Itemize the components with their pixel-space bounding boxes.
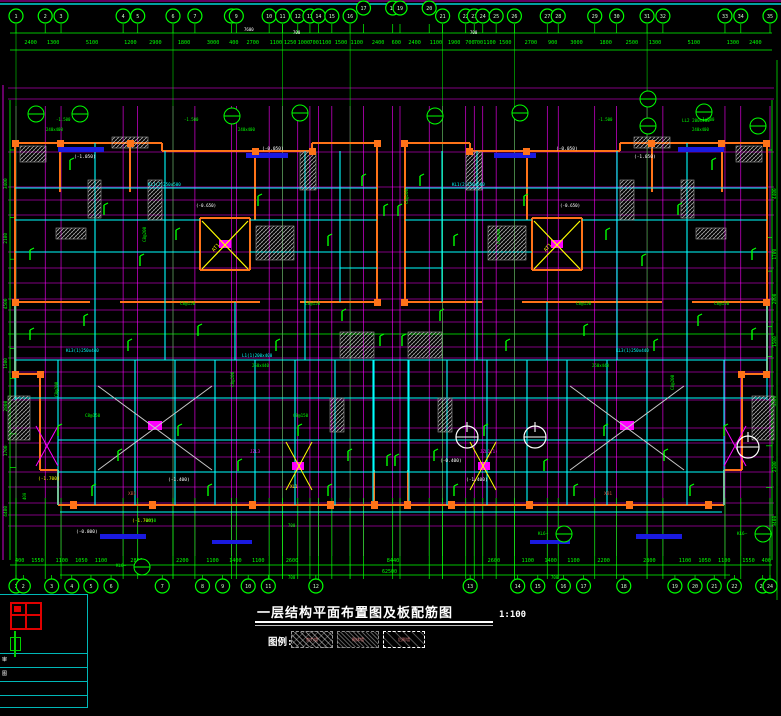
dimension-text: 2500 [626,40,639,46]
axis-number: 12 [313,584,319,590]
axis-number: 31 [644,14,650,20]
axis-number: 16 [347,14,353,20]
cad-application-window: 1234567891011121314151617181920212223242… [0,0,781,716]
dimension-text: 1100 [430,40,443,46]
dimension-text: 1100 [55,558,68,564]
column [327,501,334,509]
rebar-tick [642,254,646,256]
axis-number: 20 [426,6,432,12]
column [763,140,770,147]
lintel [58,147,104,152]
annotation-text: (-0.050) [262,146,284,152]
axis-number: 5 [89,584,92,590]
axis-number: 3 [50,584,53,590]
dimension-text: 1100 [567,558,580,564]
dimension-text: 2800 [772,293,778,304]
dimension-text: 1300 [649,40,662,46]
hatched-wall [256,226,294,260]
dimension-text: 1100 [319,40,332,46]
rebar-tick [104,203,108,205]
dimension-text: 1100 [351,40,364,46]
dimension-text: 2200 [597,558,610,564]
annotation-text: C8@200 [496,228,501,244]
column [127,140,134,147]
hatched-wall [408,332,442,358]
column [401,299,408,306]
hatched-wall [620,180,634,220]
dimension-text: 5100 [86,40,99,46]
axis-number: 14 [515,584,521,590]
annotation-text: 7600 [244,27,254,32]
dimension-text: 1700 [3,445,9,456]
axis-number: 16 [560,584,566,590]
annotation-text: -1.500 [184,117,199,122]
column [763,299,770,306]
dimension-text: 1900 [448,40,461,46]
annotation-text: 240x400 [692,127,709,132]
rebar-tick [118,449,122,451]
dimension-text: 1500 [3,358,9,369]
axis-number: 17 [580,584,586,590]
column [648,140,655,147]
dimension-text: 1200 [124,40,137,46]
dimension-text: 1500 [335,40,348,46]
annotation-text: KL6— [737,531,748,536]
lintel [100,534,146,539]
dimension-text: 1300 [47,40,60,46]
hatched-wall [752,396,774,440]
annotation-text: JZL3 [250,449,261,454]
axis-number: 2 [44,14,47,20]
column [12,299,19,306]
axis-number: 26 [511,14,517,20]
titleblock-symbol-icon [10,631,22,657]
hatched-wall [56,228,86,239]
rebar-tick [698,314,702,316]
rebar-tick [328,234,332,236]
axis-number: 4 [70,584,73,590]
axis-number: 7 [193,14,196,20]
annotation-text: C8@200 [54,381,59,397]
column [523,148,530,155]
dimension-text: 4400 [3,506,9,517]
hatched-wall [488,226,526,260]
rebar-tick [84,314,88,316]
annotation-text: 700 [288,523,296,528]
rebar-tick [298,424,302,426]
annotation-text: XL1 [290,484,298,489]
dimension-text: 1100 [483,40,496,46]
annotation-text: C8@200 [670,374,675,390]
hatched-wall [8,396,30,440]
legend-swatch-3: 后砌墙 [383,631,425,648]
titleblock-stamp-icon [10,602,42,630]
annotation-text: 700 [551,575,559,580]
axis-number: 24 [480,14,486,20]
dimension-text: 2800 [643,558,656,564]
rebar-tick [654,339,658,341]
legend-swatch-2: 砌体墙 [337,631,379,648]
rebar-tick [30,328,34,330]
rebar-tick [664,449,668,451]
lintel [212,540,252,544]
rebar-tick [140,254,144,256]
rebar-tick [258,194,262,196]
dimension-text: 1000 [298,40,311,46]
annotation-text: 250x440 [252,363,269,368]
annotation-text: C8@150 [305,301,321,306]
dimension-text: 2400 [408,40,421,46]
annotation-text: C8@200 [230,371,235,387]
annotation-text: XB1 [604,491,612,497]
axis-number: 9 [235,14,238,20]
dimension-text: 1700 [772,249,778,260]
axis-number: 8 [201,584,204,590]
dimension-text: 1100 [252,558,265,564]
rebar-tick [362,174,366,176]
annotation-text: (-0.800) [76,529,98,535]
annotation-text: 2550 [146,518,157,523]
column [371,501,378,509]
hatched-wall [696,228,726,239]
axis-number: 17 [360,6,366,12]
rebar-tick [434,449,438,451]
column [249,501,256,509]
axis-number: 13 [467,584,473,590]
column [705,501,712,509]
dimension-text: 600 [392,40,401,46]
annotation-text: (-1.700) [38,476,60,482]
column [374,299,381,306]
hatched-wall [20,146,46,162]
axis-number: 34 [738,14,744,20]
annotation-text: (-1.050) [74,154,96,160]
title-block: 审 图 [0,594,88,708]
column [466,148,473,155]
axis-number: 27 [544,14,550,20]
axis-number: 24 [767,584,773,590]
axis-number: 6 [110,584,113,590]
dimension-text: 700 [310,40,319,46]
rebar-tick [712,158,716,160]
dimension-text: 2900 [149,40,162,46]
axis-number: 28 [555,14,561,20]
dimension-text: 1100 [206,558,219,564]
axis-number: 3 [60,14,63,20]
dimension-text: 1400 [544,558,557,564]
annotation-text: 700 [470,30,478,35]
annotation-text: C8@150 [85,413,101,418]
annotation-text: -1.500 [700,117,715,122]
annotation-text: (-1.050) [634,154,656,160]
rebar-tick [724,424,728,426]
rebar-tick [752,328,756,330]
annotation-text: C8@200 [142,226,147,242]
axis-number: 35 [767,14,773,20]
drawing-scale: 1:100 [499,610,526,620]
dimension-text: 3000 [570,40,583,46]
rebar-tick [328,484,332,486]
axis-number: 22 [731,584,737,590]
annotation-text: KL1(2)250x500 [148,182,181,187]
dimension-text: 2400 [372,40,385,46]
dimension-text: 400 [229,40,238,46]
dimension-text: 1300 [727,40,740,46]
legend: 剪力墙 砌体墙 后砌墙 [291,631,425,648]
dimension-text: 4400 [772,188,778,199]
column [626,501,633,509]
rebar-tick [30,248,34,250]
axis-number: 9 [221,584,224,590]
dimension-text: 2200 [176,558,189,564]
hatched-wall [438,398,452,432]
column [718,140,725,147]
column [37,371,44,378]
axis-number: 6 [171,14,174,20]
rebar-tick [128,339,132,341]
dimension-text: 400 [15,558,24,564]
dimension-text: 4500 [3,298,9,309]
axis-number: 4 [122,14,125,20]
rebar-tick [690,484,694,486]
legend-swatch-1: 剪力墙 [291,631,333,648]
rebar-tick [420,174,424,176]
title-underline-2 [255,625,493,626]
rebar-tick [506,339,510,341]
rebar-tick [387,454,391,456]
dimension-text: 3400 [3,178,9,189]
dimension-text: 1550 [742,558,755,564]
column [57,140,64,147]
dimension-text: 1050 [698,558,711,564]
column [252,148,259,155]
dimension-text: 700 [474,40,483,46]
column [401,140,408,147]
dimension-text: 2400 [24,40,37,46]
hatched-wall [340,332,374,358]
dimension-text: 3000 [207,40,220,46]
axis-number: 20 [692,584,698,590]
axis-number: 12 [295,14,301,20]
axis-number: 21 [711,584,717,590]
lintel [678,147,724,152]
annotation-text: KL3(1)250x440 [66,348,99,353]
annotation-text: 240x400 [238,127,255,132]
annotation-text: 240x400 [46,127,63,132]
drawing-title: 一层结构平面布置图及板配筋图 [257,602,453,621]
dimension-text: 1100 [270,40,283,46]
axis-number: 15 [535,584,541,590]
dimension-text: 2700 [525,40,538,46]
rebar-tick [454,234,458,236]
annotation-text: 62500 [382,569,397,575]
annotation-text: C8@150 [576,301,592,306]
axis-number: 19 [672,584,678,590]
annotation-text: KL3(1)250x440 [616,348,649,353]
annotation-text: C8@150 [714,301,730,306]
axis-number: 21 [440,14,446,20]
rebar-tick [606,228,610,230]
rebar-tick [454,484,458,486]
hatched-wall [681,180,694,218]
dimension-text: 900 [548,40,557,46]
annotation-text: KL6— [538,531,549,536]
column [12,371,19,378]
dimension-text: 1400 [229,558,242,564]
axis-number: 29 [592,14,598,20]
annotation-text: KL1(2)250x500 [452,182,485,187]
column [309,148,316,155]
dimension-text: 1100 [718,558,731,564]
annotation-text: 400 [22,492,27,500]
column [404,501,411,509]
rebar-tick [198,324,202,326]
annotation-text: XB1 [128,491,136,497]
annotation-text: -1.500 [56,117,71,122]
rebar-tick [176,228,180,230]
rebar-tick [395,454,399,456]
dimension-text: 2600 [488,558,501,564]
axis-number: 15 [329,14,335,20]
annotation-text: C8@150 [293,413,309,418]
axis-number: 5 [136,14,139,20]
axis-number: 7 [161,584,164,590]
axis-number: 11 [265,584,271,590]
rebar-tick [574,484,578,486]
dimension-text: 1800 [178,40,191,46]
dimension-text: 8440 [387,558,400,564]
axis-number: 10 [266,14,272,20]
axis-number: 32 [660,14,666,20]
rebar-tick [384,204,388,206]
dimension-text: 400 [762,558,771,564]
lintel [636,534,682,539]
rebar-tick [208,484,212,486]
dimension-text: 3400 [772,516,778,527]
opening-marker [620,421,634,430]
dimension-text: 2100 [3,233,9,244]
dimension-text: 1250 [284,40,297,46]
annotation-text: (-1.400) [466,477,488,483]
annotation-text: C8@150 [180,301,196,306]
annotation-text: (-0.050) [556,146,578,152]
column [70,501,77,509]
axis-number: 11 [280,14,286,20]
axis-number: 25 [493,14,499,20]
annotation-text: -1.500 [598,117,613,122]
rebar-tick [752,248,756,250]
dimension-text: 1500 [772,336,778,347]
annotation-text: 250x440 [592,363,609,368]
opening-marker [148,421,162,430]
axis-number: 2 [22,584,25,590]
column [374,140,381,147]
column [763,371,770,378]
annotation-text: C8@200 [404,188,409,204]
dimension-text: 1100 [521,558,534,564]
annotation-text: 700 [288,575,296,580]
dimension-text: 2700 [246,40,259,46]
rebar-tick [238,459,242,461]
axis-number: 30 [614,14,620,20]
titleblock-row-text: 审 [2,656,7,663]
annotation-text: (-1.400) [168,477,190,483]
title-underline [255,621,493,623]
hatched-wall [300,152,316,190]
annotation-text: (-0.400) [440,458,462,464]
dimension-text: 2100 [772,461,778,472]
column [149,501,156,509]
column [12,140,19,147]
hatched-wall [330,398,344,432]
dimension-text: 1800 [599,40,612,46]
legend-label: 图例: [268,634,293,648]
axis-number: 33 [722,14,728,20]
dimension-text: 5100 [688,40,701,46]
dimension-text: 1550 [31,558,44,564]
annotation-text: JZL1(1) [480,449,498,454]
dimension-text: 1100 [95,558,108,564]
hatched-wall [736,146,762,162]
axis-number: 18 [621,584,627,590]
rebar-tick [276,339,280,341]
annotation-text: L1(1)200x400 [242,353,273,358]
annotation-text: (-0.650) [560,203,580,208]
column [738,371,745,378]
axis-number: 14 [315,14,321,20]
axis-number: 19 [397,6,403,12]
axis-number: 1 [14,14,17,20]
dimension-text: 1500 [499,40,512,46]
column [526,501,533,509]
dimension-text: 2400 [749,40,762,46]
dimension-text: 1100 [679,558,692,564]
column [448,501,455,509]
dimension-text: 2600 [286,558,299,564]
rebar-tick [58,424,62,426]
annotation-text: (-0.650) [196,203,216,208]
annotation-text: KL6— [116,563,127,568]
axis-number: 10 [245,584,251,590]
annotation-text: 700 [293,30,301,35]
rebar-tick [584,324,588,326]
dimension-text: 1050 [75,558,88,564]
rebar-tick [178,424,182,426]
titleblock-row-text: 图 [2,670,7,677]
hatched-wall [88,180,101,218]
